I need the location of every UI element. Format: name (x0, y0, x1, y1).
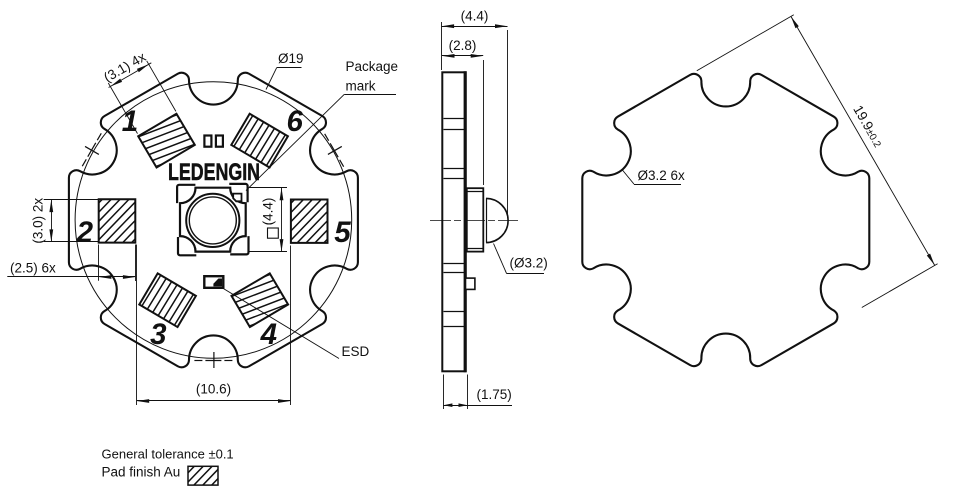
svg-text:Pad finish Au: Pad finish Au (102, 465, 181, 480)
svg-text:ESD: ESD (342, 344, 370, 359)
svg-text:(2.5) 6x: (2.5) 6x (10, 261, 56, 276)
svg-text:Ø19: Ø19 (278, 51, 304, 66)
svg-text:(1.75): (1.75) (477, 387, 512, 402)
svg-text:6: 6 (286, 105, 303, 138)
svg-text:(4.4): (4.4) (261, 198, 276, 226)
svg-text:3: 3 (150, 318, 167, 351)
svg-text:(2.8): (2.8) (449, 38, 477, 53)
svg-text:4: 4 (260, 318, 277, 351)
svg-text:Package: Package (346, 59, 399, 74)
svg-text:(4.4): (4.4) (461, 9, 489, 24)
svg-text:2: 2 (76, 216, 94, 249)
svg-text:mark: mark (346, 79, 376, 94)
svg-text:(3.0) 2x: (3.0) 2x (31, 198, 46, 244)
svg-text:(Ø3.2): (Ø3.2) (510, 256, 548, 271)
svg-text:5: 5 (334, 216, 351, 249)
svg-text:LEDENGIN: LEDENGIN (168, 159, 260, 186)
svg-text:(10.6): (10.6) (196, 381, 231, 396)
svg-text:Ø3.2 6x: Ø3.2 6x (638, 168, 686, 183)
svg-text:General tolerance ±0.1: General tolerance ±0.1 (102, 447, 234, 462)
